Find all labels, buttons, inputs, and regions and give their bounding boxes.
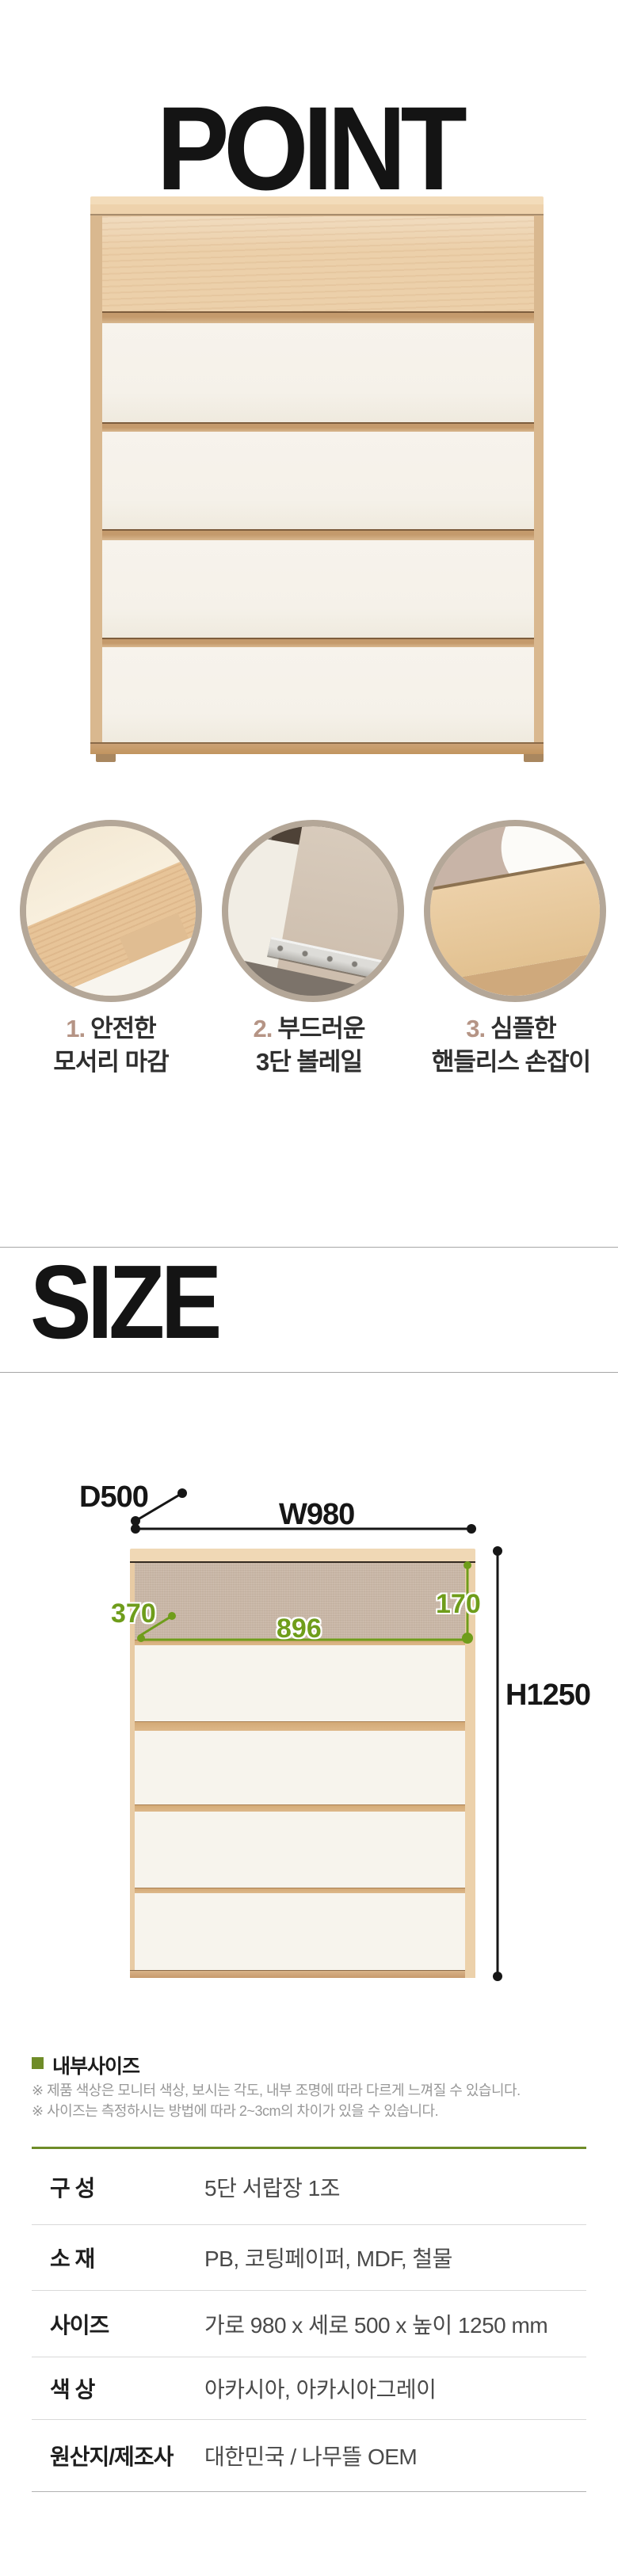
spec-value: PB, 코팅페이퍼, MDF, 철물	[204, 2242, 586, 2273]
chest-drawer-gap	[102, 638, 534, 647]
feature-number: 1.	[66, 1015, 85, 1042]
dim-width-label: W980	[279, 1498, 354, 1532]
table-row: 소 재 PB, 코팅페이퍼, MDF, 철물	[32, 2225, 586, 2291]
feature-caption-line1: 3.심플한	[404, 1012, 618, 1046]
table-row: 색 상 아카시아, 아카시아그레이	[32, 2357, 586, 2420]
feature-caption-3: 3.심플한 핸들리스 손잡이	[404, 1012, 618, 1079]
spec-label: 색 상	[32, 2372, 204, 2404]
dim-height-label: H1250	[505, 1679, 590, 1713]
point-heading: POINT	[25, 89, 593, 208]
feature-caption-line1: 1.안전한	[4, 1012, 218, 1046]
size-note-1: ※ 제품 색상은 모니터 색상, 보시는 각도, 내부 조명에 따라 다르게 느…	[32, 2079, 521, 2100]
feature-number: 3.	[466, 1015, 485, 1042]
feature-caption-line2: 핸들리스 손잡이	[404, 1046, 618, 1079]
size-note-2: ※ 사이즈는 측정하시는 방법에 따라 2~3cm의 차이가 있을 수 있습니다…	[32, 2100, 438, 2121]
chest-top-surface	[90, 196, 544, 204]
product-detail-page: POINT	[0, 0, 618, 2576]
chest-drawer-1	[102, 216, 534, 311]
spec-table: 구 성 5단 서랍장 1조 소 재 PB, 코팅페이퍼, MDF, 철물 사이즈…	[32, 2147, 586, 2492]
spec-value: 아카시아, 아카시아그레이	[204, 2372, 586, 2404]
chest-body	[90, 215, 544, 754]
dim-inner-height-label: 170	[436, 1589, 481, 1620]
product-image-chest	[90, 196, 544, 762]
feature-photo-corner-finish	[20, 820, 202, 1002]
spec-label: 소 재	[32, 2242, 204, 2273]
dim-inner-width-label: 896	[277, 1614, 322, 1644]
chest-drawer-4	[102, 540, 534, 638]
dim-depth-label: D500	[79, 1480, 148, 1515]
spec-value: 5단 서랍장 1조	[204, 2171, 586, 2203]
table-row: 구 성 5단 서랍장 1조	[32, 2149, 586, 2225]
chest-drawer-gap	[102, 422, 534, 432]
table-row: 원산지/제조사 대한민국 / 나무뜰 OEM	[32, 2420, 586, 2492]
feature-caption-line2: 3단 볼레일	[202, 1046, 416, 1079]
feature-caption-line1: 2.부드러운	[202, 1012, 416, 1046]
chest-foot-right	[524, 754, 544, 762]
feature-caption-1: 1.안전한 모서리 마감	[4, 1012, 218, 1079]
section-divider	[0, 1372, 618, 1373]
chest-drawer-3	[102, 432, 534, 529]
spec-label: 원산지/제조사	[32, 2440, 204, 2471]
spec-value: 가로 980 x 세로 500 x 높이 1250 mm	[204, 2308, 586, 2340]
feature-photo-ball-rail	[222, 820, 404, 1002]
feature-photo-handleless	[424, 820, 606, 1002]
size-heading: SIZE	[30, 1250, 218, 1355]
spec-label: 사이즈	[32, 2308, 204, 2340]
chest-drawer-5	[102, 647, 534, 742]
feature-caption-2: 2.부드러운 3단 볼레일	[202, 1012, 416, 1079]
spec-value: 대한민국 / 나무뜰 OEM	[204, 2440, 586, 2471]
chest-bottom-rail	[90, 742, 544, 754]
chest-top-edge	[90, 204, 544, 215]
feature-number: 2.	[254, 1015, 273, 1042]
feature-caption-line2: 모서리 마감	[4, 1046, 218, 1079]
legend-bullet-icon	[32, 2057, 44, 2069]
chest-foot-left	[96, 754, 116, 762]
chest-drawer-gap	[102, 311, 534, 323]
spec-label: 구 성	[32, 2171, 204, 2203]
dim-inner-left-label: 370	[111, 1599, 156, 1629]
chest-drawer-2	[102, 323, 534, 422]
dimension-lines	[0, 1465, 618, 2020]
legend-label: 내부사이즈	[52, 2051, 139, 2079]
chest-drawer-gap	[102, 529, 534, 540]
table-row: 사이즈 가로 980 x 세로 500 x 높이 1250 mm	[32, 2291, 586, 2357]
